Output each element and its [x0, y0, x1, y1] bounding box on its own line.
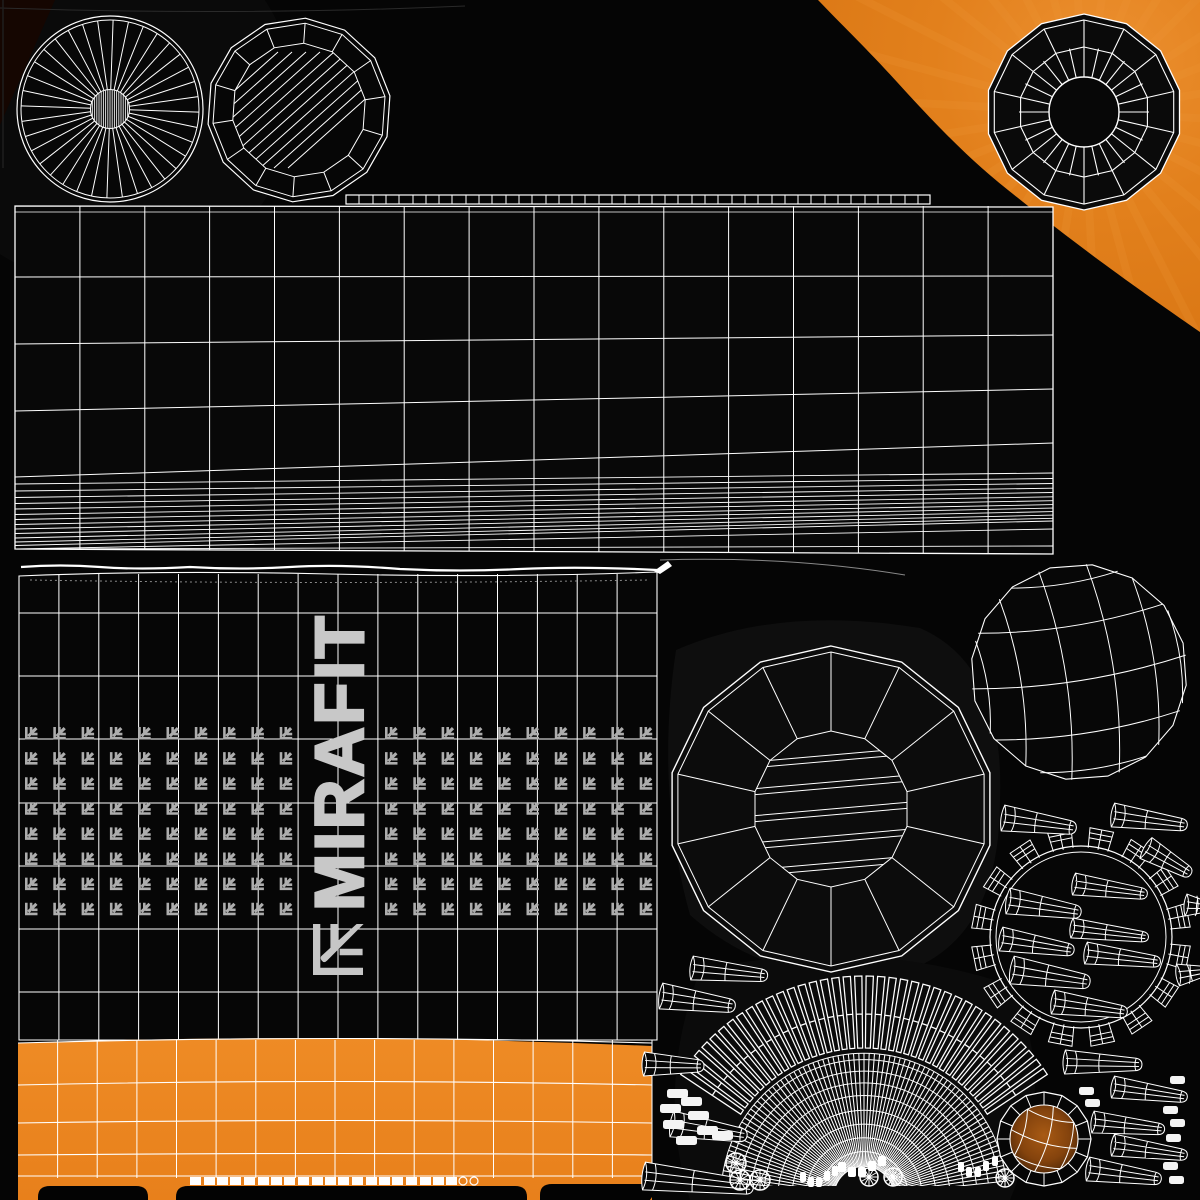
svg-text:MIRAFIT: MIRAFIT	[301, 614, 378, 911]
